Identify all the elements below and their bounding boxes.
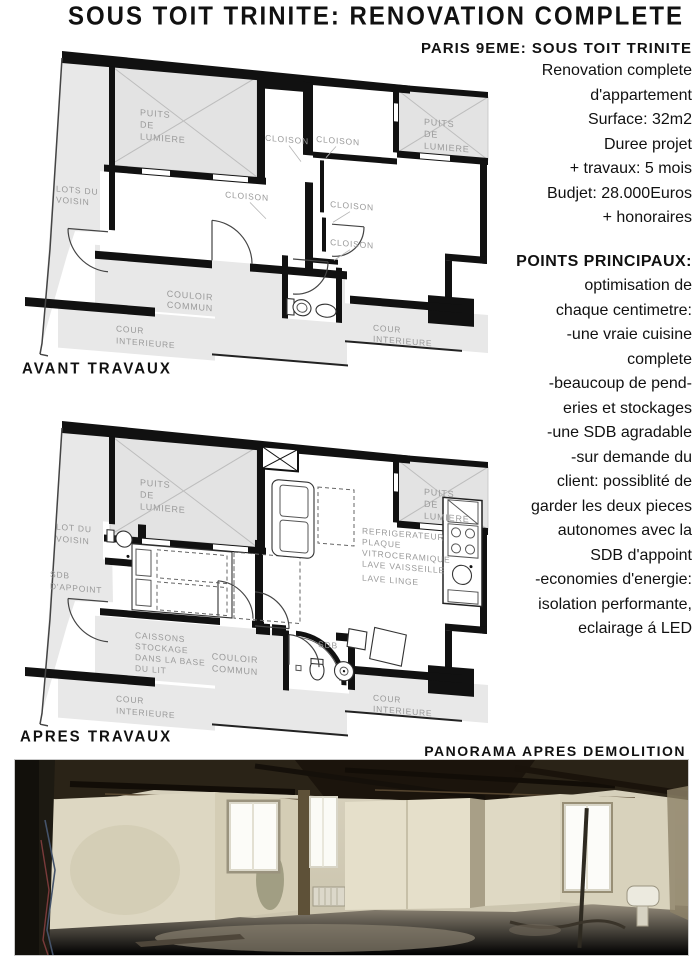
label-lightwell: DE bbox=[140, 119, 154, 130]
duct-column-icon bbox=[262, 446, 298, 471]
label-lightwell: DE bbox=[424, 129, 438, 140]
caption-before: AVANT TRAVAUX bbox=[22, 360, 172, 378]
label-bathroom: SDB bbox=[318, 639, 338, 651]
label-lightwell: DE bbox=[424, 499, 438, 510]
lightwell-nw bbox=[110, 435, 257, 547]
caption-after: APRES TRAVAUX bbox=[20, 728, 172, 746]
points-line: eries et stockages bbox=[416, 397, 692, 422]
lightwell-nw bbox=[110, 65, 257, 177]
panorama-heading: PANORAMA APRES DEMOLITION bbox=[424, 743, 686, 759]
photo-painting bbox=[15, 760, 688, 955]
page-title: SOUS TOIT TRINITE: RENOVATION COMPLETE bbox=[58, 2, 694, 32]
floorplan-before: PUITS DE LUMIERE PUITS DE LUMIERE LOTS D… bbox=[0, 50, 500, 385]
label-sdb-appoint: SDB bbox=[50, 569, 70, 581]
floorplan-after: PUITS DE LUMIERE PUITS DE LUMIERE LOT DU… bbox=[0, 420, 500, 755]
panorama-photo bbox=[15, 760, 688, 955]
toilet-icon bbox=[287, 298, 311, 316]
label-lightwell: DE bbox=[140, 489, 154, 500]
